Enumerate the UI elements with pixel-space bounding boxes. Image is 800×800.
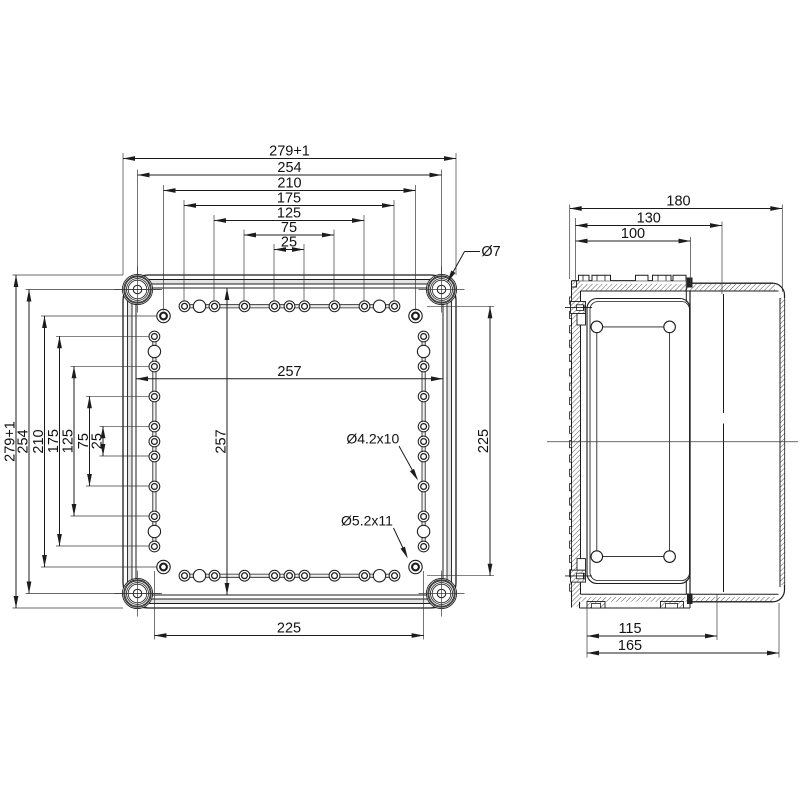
svg-text:Ø5.2x11: Ø5.2x11 [341,513,393,529]
svg-text:165: 165 [618,638,642,654]
svg-text:257: 257 [214,429,230,453]
svg-text:115: 115 [618,621,641,637]
svg-text:25: 25 [89,433,105,449]
svg-text:254: 254 [277,160,301,176]
svg-text:25: 25 [281,235,297,251]
svg-text:225: 225 [476,429,492,453]
svg-text:180: 180 [666,194,690,210]
svg-text:254: 254 [15,429,31,453]
svg-text:257: 257 [277,364,301,380]
svg-text:210: 210 [31,429,47,453]
svg-text:Ø7: Ø7 [481,244,500,260]
svg-text:100: 100 [621,226,645,242]
svg-text:130: 130 [637,211,661,227]
svg-text:225: 225 [277,621,301,637]
svg-text:279+1: 279+1 [269,144,310,160]
svg-text:125: 125 [60,429,76,453]
svg-text:Ø4.2x10: Ø4.2x10 [346,430,399,446]
svg-text:175: 175 [277,191,301,207]
svg-text:210: 210 [277,176,301,192]
